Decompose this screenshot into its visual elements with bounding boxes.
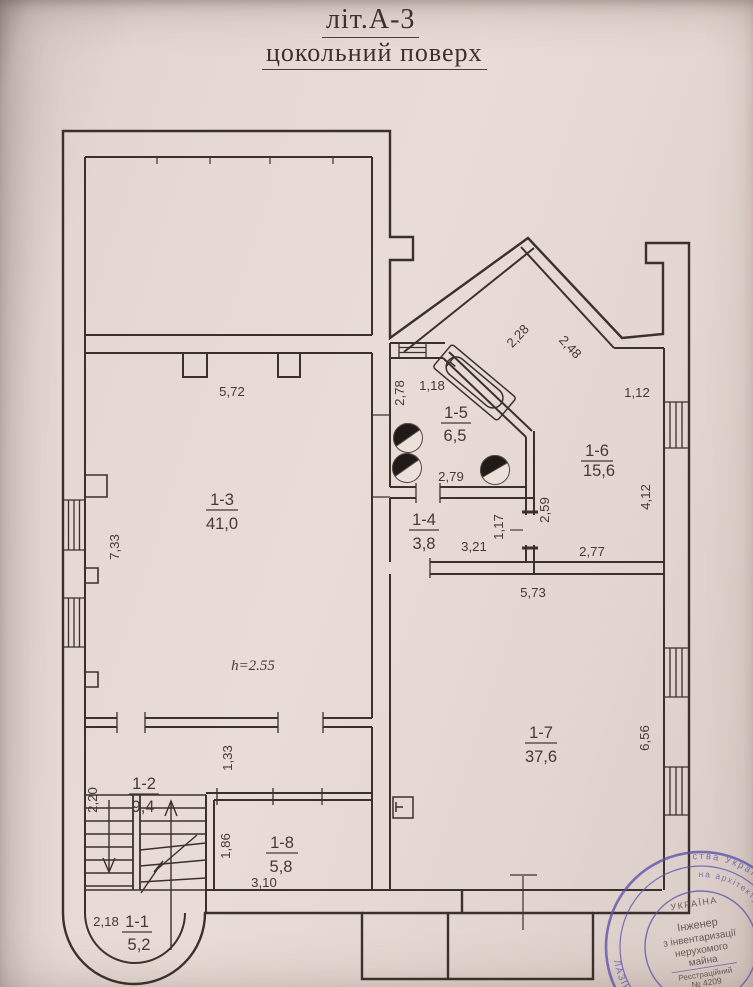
dim-1-12: 1,12 [624, 385, 650, 400]
inner-walls [63, 157, 689, 963]
stamp-country: УКРАЇНА [670, 895, 719, 912]
dim-2-78: 2,78 [392, 380, 407, 406]
room-1-6-number: 1-6 [585, 442, 609, 460]
dim-2-48: 2,48 [556, 332, 584, 361]
dim-2-77: 2,77 [579, 544, 605, 559]
room-1-4-number: 1-4 [412, 511, 436, 529]
dim-1-86: 1,86 [218, 833, 233, 859]
stair-up-arrow [165, 801, 177, 950]
room-1-1-area: 5,2 [128, 936, 151, 954]
dim-2-28: 2,28 [503, 321, 531, 350]
dim-2-20: 2,20 [85, 787, 100, 813]
room-1-7-area: 37,6 [525, 748, 557, 766]
dim-3-10: 3,10 [251, 875, 277, 890]
room-1-3-number: 1-3 [210, 491, 234, 509]
dim-5-73: 5,73 [520, 585, 546, 600]
dim-6-56: 6,56 [637, 725, 652, 751]
room-1-6-area: 15,6 [583, 462, 615, 480]
dim-1-18: 1,18 [419, 378, 445, 393]
dim-1-17: 1,17 [491, 514, 506, 540]
boiler-fixture [393, 797, 413, 818]
room-1-5-number: 1-5 [444, 404, 468, 422]
dim-2-59: 2,59 [537, 497, 552, 523]
room-1-8-number: 1-8 [270, 834, 294, 852]
room-1-2-area: 9,4 [132, 798, 155, 816]
dim-3-21: 3,21 [461, 539, 487, 554]
room-labels: 1-3 41,0 1-2 9,4 1-1 5,2 1-8 5,8 1-4 3,8… [122, 404, 615, 954]
floor-plan-drawing: 1-3 41,0 1-2 9,4 1-1 5,2 1-8 5,8 1-4 3,8… [0, 0, 753, 987]
room-1-7-number: 1-7 [529, 724, 553, 742]
dimension-labels: 5,72 7,33 2,20 1,33 2,18 1,86 3,10 2,78 … [85, 321, 653, 929]
dim-5-72: 5,72 [219, 384, 245, 399]
room-1-3-area: 41,0 [206, 515, 238, 533]
room-1-8-area: 5,8 [270, 858, 293, 876]
room-1-5-area: 6,5 [444, 427, 467, 445]
room-1-1-number: 1-1 [125, 913, 149, 931]
stair-down-arrow [103, 800, 115, 872]
room-1-2-number: 1-2 [132, 775, 156, 793]
dim-7-33: 7,33 [107, 534, 122, 560]
room-1-4-area: 3,8 [413, 535, 436, 553]
scanned-floor-plan-page: літ.А-3 цокольний поверх [0, 0, 753, 987]
ceiling-height-note: h=2.55 [231, 658, 275, 674]
dim-1-33: 1,33 [220, 745, 235, 771]
dim-4-12: 4,12 [638, 484, 653, 510]
dim-2-79: 2,79 [438, 469, 464, 484]
dim-2-18: 2,18 [93, 914, 119, 929]
